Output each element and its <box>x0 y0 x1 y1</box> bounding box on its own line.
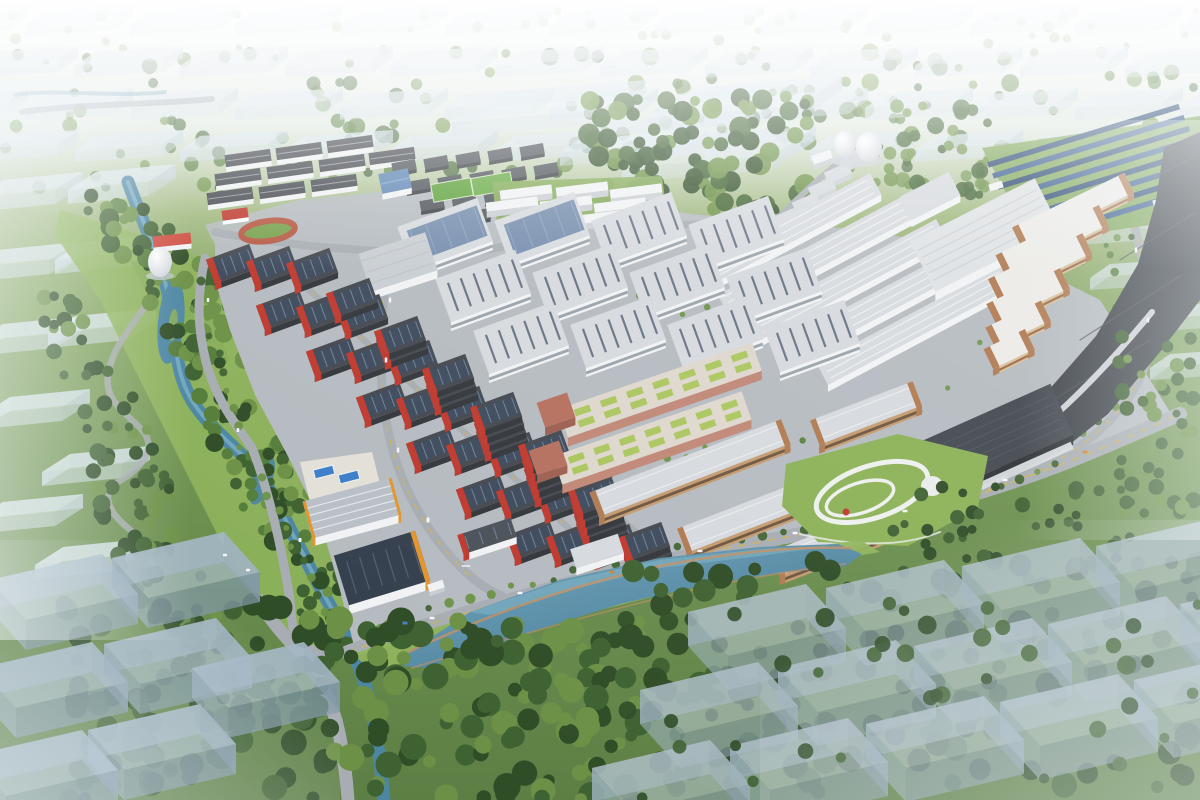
industrial-park-aerial-rendering <box>0 0 1200 800</box>
haze-veil <box>0 0 1200 800</box>
aerial-render-viewport <box>0 0 1200 800</box>
